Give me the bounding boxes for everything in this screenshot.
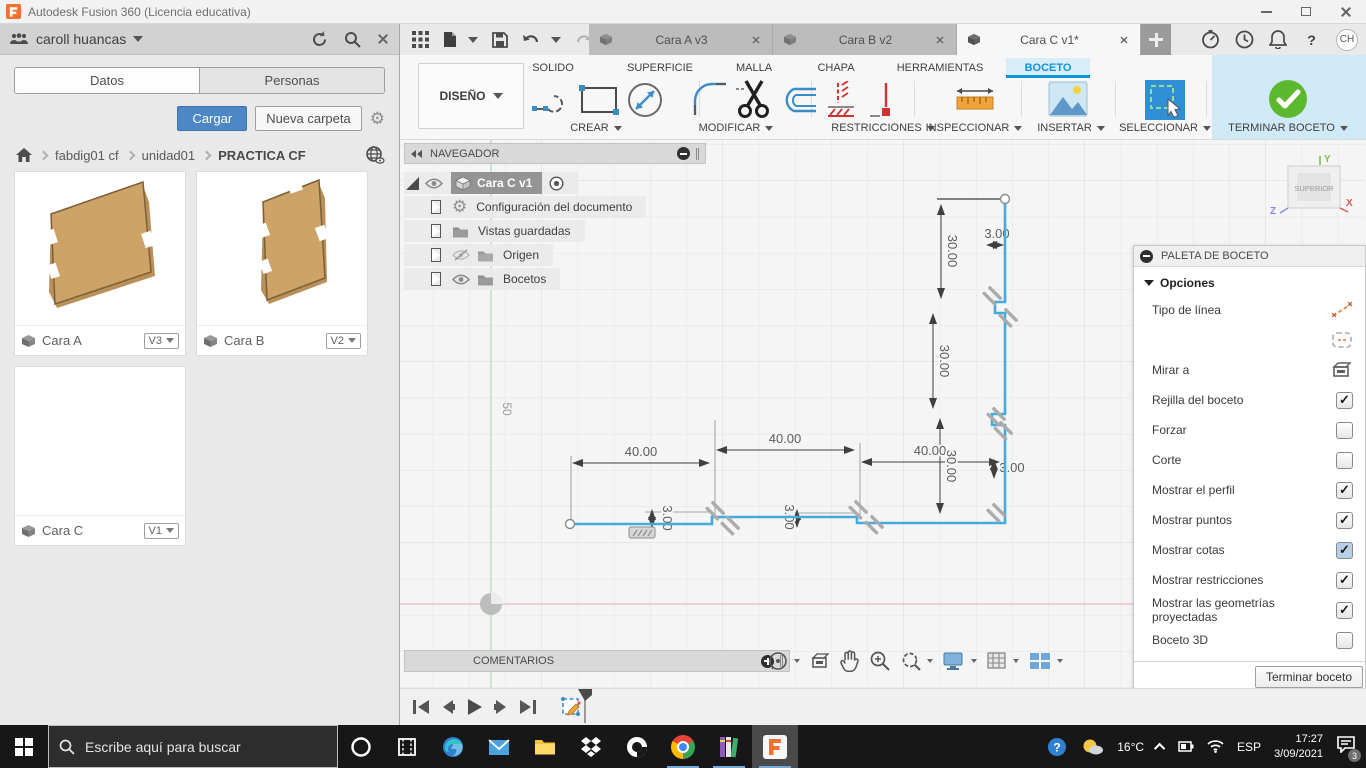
expand-arrow-icon[interactable] (432, 201, 440, 213)
sketch-palette-panel: PALETA DE BOCETO Opciones Tipo de línea … (1133, 245, 1366, 694)
close-tab-icon[interactable] (936, 35, 944, 43)
thumbnail-cara-c (15, 367, 185, 515)
component-cube-icon (21, 334, 36, 348)
measure-ruler-icon[interactable] (953, 85, 997, 115)
document-cube-icon (967, 33, 981, 46)
dropbox-icon (579, 736, 603, 758)
version-dropdown[interactable]: V2 (326, 333, 361, 349)
file-explorer-icon (533, 737, 557, 757)
folder-icon (477, 273, 494, 286)
component-cube-icon (455, 176, 471, 191)
visibility-eye-icon[interactable] (452, 274, 470, 285)
thumbnail-cara-b (197, 172, 367, 320)
tab-malla[interactable]: MALLA (720, 58, 788, 78)
panel-minus-icon[interactable] (677, 147, 690, 160)
group-crear[interactable]: CREAR (546, 121, 646, 135)
sketch-endpoint[interactable] (566, 520, 575, 529)
selected-root-node[interactable]: Cara C v1 (451, 172, 542, 194)
expand-corner-icon[interactable] (406, 177, 419, 190)
taskbar-winrar[interactable] (706, 725, 752, 768)
timeline-bar (400, 688, 1366, 725)
settings-gear-icon[interactable] (370, 109, 385, 129)
palette-row-mostrar-perfil: Mostrar el perfil (1134, 475, 1365, 505)
taskbar-portal[interactable] (614, 725, 660, 768)
minimize-button[interactable] (1246, 0, 1286, 23)
grid-snap-icon[interactable] (986, 651, 1008, 671)
viewcube-axis-x: X (1346, 198, 1353, 209)
navigator-panel: NAVEGADOR Cara C v1 Configura (404, 143, 706, 291)
select-icon[interactable] (1144, 79, 1186, 121)
ribbon-toolbar: DISEÑO SOLIDO SUPERFICIE MALLA CHAPA HER… (400, 55, 1366, 140)
avatar[interactable]: CH (1336, 29, 1358, 51)
refresh-icon[interactable] (311, 31, 328, 48)
panel-grip[interactable] (696, 148, 699, 160)
dim-width-3: 40.00 (914, 443, 947, 458)
timeline-step-back-icon[interactable] (440, 699, 456, 715)
breadcrumb-folder[interactable]: unidad01 (142, 148, 196, 163)
undo-icon (522, 33, 540, 47)
wifi-icon[interactable] (1207, 740, 1224, 753)
sketch-endpoint[interactable] (1001, 195, 1010, 204)
group-modificar[interactable]: MODIFICAR (676, 121, 796, 135)
palette-row-boceto-3d: Boceto 3D (1134, 625, 1365, 655)
taskbar-chrome[interactable] (660, 725, 706, 768)
palette-row-rejilla: Rejilla del boceto (1134, 385, 1365, 415)
team-icon (10, 33, 28, 46)
search-icon[interactable] (344, 31, 361, 48)
file-card-cara-a[interactable]: Cara A V3 (15, 172, 185, 355)
create-rectangle-icon[interactable] (578, 83, 620, 117)
taskbar-mail[interactable] (476, 725, 522, 768)
history-clock-icon[interactable] (1235, 30, 1254, 49)
tray-time: 17:27 (1274, 732, 1323, 747)
temperature[interactable]: 16°C (1117, 740, 1144, 754)
help-icon[interactable]: ? (1302, 30, 1321, 49)
tab-chapa[interactable]: CHAPA (800, 58, 872, 78)
palette-row-forzar: Forzar (1134, 415, 1365, 445)
visibility-eye-icon[interactable] (425, 178, 443, 189)
chevron-down-icon[interactable] (133, 36, 143, 42)
search-icon (59, 739, 75, 755)
undo-button[interactable] (522, 33, 561, 47)
globe-share-icon[interactable] (365, 145, 385, 165)
group-terminar-boceto[interactable]: TERMINAR BOCETO (1208, 121, 1366, 135)
projected-geometry-icon[interactable] (1331, 331, 1353, 349)
version-dropdown[interactable]: V1 (144, 523, 179, 539)
checkbox-mostrar-restricciones[interactable] (1336, 572, 1353, 589)
chrome-icon (671, 735, 695, 759)
action-center[interactable]: 3 (1336, 735, 1356, 758)
viewcube-axis-z: Z (1270, 206, 1276, 217)
pan-hand-icon[interactable] (840, 650, 860, 672)
tray-date: 3/09/2021 (1274, 747, 1323, 762)
navigator-title: NAVEGADOR (430, 148, 499, 160)
view-toolbar (767, 650, 1063, 672)
tree-item-origen[interactable]: Origen (404, 244, 553, 266)
palette-row-mostrar-cotas: Mostrar cotas (1134, 535, 1365, 565)
checkbox-forzar[interactable] (1336, 422, 1353, 439)
palette-row-mostrar-restricciones: Mostrar restricciones (1134, 565, 1365, 595)
close-tab-icon[interactable] (1120, 35, 1128, 43)
tree-item-vistas[interactable]: Vistas guardadas (404, 220, 585, 242)
folder-icon (477, 249, 494, 262)
palette-row-mostrar-puntos: Mostrar puntos (1134, 505, 1365, 535)
checkbox-geometrias-proyectadas[interactable] (1336, 602, 1353, 619)
document-tab-cara-c[interactable]: Cara C v1* (957, 24, 1141, 55)
dim-height-2: 30.00 (937, 345, 952, 378)
windows-taskbar: Escribe aquí para buscar ? 16°C ESP 17:2… (0, 725, 1366, 768)
windows-logo-icon (15, 738, 33, 756)
task-view-icon (396, 736, 418, 758)
timeline-sketch-feature-marker[interactable] (561, 689, 595, 725)
data-panel-header: caroll huancas (0, 24, 399, 55)
app-grid-icon[interactable] (412, 31, 429, 48)
timeline-step-forward-icon[interactable] (493, 699, 509, 715)
viewcube-axis-y: Y (1324, 154, 1331, 165)
upload-button[interactable]: Cargar (177, 106, 247, 131)
expand-arrow-icon[interactable] (432, 273, 440, 285)
component-cube-icon (21, 524, 36, 538)
window-title: Autodesk Fusion 360 (Licencia educativa) (28, 5, 251, 19)
new-folder-button[interactable]: Nueva carpeta (255, 106, 362, 131)
dim-width-1: 40.00 (625, 444, 658, 459)
panel-minus-icon[interactable] (1140, 250, 1153, 263)
checkbox-mostrar-puntos[interactable] (1336, 512, 1353, 529)
file-card-cara-b[interactable]: Cara B V2 (197, 172, 367, 355)
document-tab-cara-b[interactable]: Cara B v2 (773, 24, 957, 55)
tab-solido[interactable]: SOLIDO (518, 58, 588, 78)
palette-row-geometrias-proyectadas: Mostrar las geometrías proyectadas (1134, 595, 1365, 625)
finish-sketch-button[interactable]: Terminar boceto (1255, 666, 1363, 688)
checkbox-mostrar-perfil[interactable] (1336, 482, 1353, 499)
fillet-icon[interactable] (692, 81, 730, 119)
battery-icon[interactable] (1178, 740, 1194, 753)
close-panel-icon[interactable] (377, 33, 389, 45)
timeline-play-icon[interactable] (466, 698, 483, 716)
palette-title: PALETA DE BOCETO (1161, 250, 1269, 262)
main-workspace: 50 (400, 24, 1366, 725)
taskbar-edge[interactable] (430, 725, 476, 768)
ground-constraint-icon[interactable] (629, 527, 655, 538)
zoom-icon[interactable] (869, 650, 891, 672)
document-settings-gear-icon (452, 197, 467, 217)
comments-title: COMENTARIOS (473, 655, 554, 667)
file-card-cara-c[interactable]: Cara C V1 (15, 367, 185, 545)
create-line-icon[interactable] (532, 83, 570, 117)
activate-radio-icon[interactable] (549, 176, 564, 191)
fit-view-icon[interactable] (900, 650, 922, 672)
workspace-selector[interactable]: DISEÑO (418, 63, 524, 129)
dim-width-2: 40.00 (769, 431, 802, 446)
timeline-skip-start-icon[interactable] (412, 699, 430, 715)
sketch-dimension-icon[interactable] (626, 81, 664, 119)
breadcrumb-current: PRACTICA CF (218, 148, 306, 163)
version-dropdown[interactable]: V3 (144, 333, 179, 349)
insert-image-icon[interactable] (1048, 81, 1088, 117)
taskbar-file-explorer[interactable] (522, 725, 568, 768)
close-button[interactable] (1326, 0, 1366, 23)
file-name: Cara C (42, 523, 83, 538)
title-bar: Autodesk Fusion 360 (Licencia educativa) (0, 0, 1366, 24)
clock[interactable]: 17:27 3/09/2021 (1274, 732, 1323, 762)
user-name[interactable]: caroll huancas (36, 31, 126, 47)
options-section-header[interactable]: Opciones (1134, 267, 1365, 295)
search-placeholder: Escribe aquí para buscar (85, 739, 241, 755)
orbit-icon[interactable] (767, 650, 789, 672)
dim-height-3: 30.00 (944, 450, 959, 483)
dim-thickness-bottom-1: 3.00 (660, 505, 675, 530)
mail-icon (487, 737, 511, 757)
taskbar-task-view[interactable] (384, 725, 430, 768)
tab-superficie[interactable]: SUPERFICIE (610, 58, 710, 78)
start-button[interactable] (0, 725, 48, 768)
palette-row-mirar-a: Mirar a (1134, 355, 1365, 385)
taskbar-dropbox[interactable] (568, 725, 614, 768)
palette-row-projected (1134, 325, 1365, 355)
language-indicator[interactable]: ESP (1237, 740, 1261, 754)
tab-boceto[interactable]: BOCETO (1006, 58, 1090, 78)
tree-root-cara-c[interactable]: Cara C v1 (404, 172, 578, 194)
taskbar-cortana[interactable] (338, 725, 384, 768)
comments-panel[interactable]: COMENTARIOS (404, 650, 790, 672)
trim-scissors-icon[interactable] (734, 79, 774, 121)
dim-height-1: 30.00 (945, 235, 960, 268)
taskbar-fusion360[interactable] (752, 725, 798, 768)
tab-herramientas[interactable]: HERRAMIENTAS (880, 58, 1000, 78)
breadcrumb: fabdig01 cf unidad01 PRACTICA CF (16, 145, 385, 165)
close-tab-icon[interactable] (752, 35, 760, 43)
notification-badge: 3 (1348, 749, 1361, 762)
file-menu[interactable] (443, 31, 478, 48)
visibility-off-eye-icon[interactable] (452, 249, 470, 261)
job-status-icon[interactable] (1201, 30, 1220, 49)
constraint-vertical-icon[interactable] (866, 81, 900, 119)
document-cube-icon (599, 33, 613, 46)
grid-scale-label: 50 (500, 402, 514, 416)
viewcube-face-label: SUPERIOR (1294, 184, 1334, 193)
collapse-panel-icon[interactable] (411, 150, 422, 158)
cortana-icon (350, 736, 372, 758)
timeline-skip-end-icon[interactable] (519, 699, 537, 715)
portal-icon (625, 735, 649, 759)
document-tab-cara-a[interactable]: Cara A v3 (589, 24, 773, 55)
look-at-icon[interactable] (809, 652, 831, 670)
folder-icon (452, 225, 469, 238)
new-tab-button[interactable] (1141, 24, 1171, 55)
look-at-icon[interactable] (1331, 361, 1353, 379)
viewcube[interactable]: Y SUPERIOR X Z (1268, 152, 1354, 222)
svg-text:?: ? (1054, 740, 1061, 754)
save-icon[interactable] (492, 32, 508, 48)
checkbox-corte[interactable] (1336, 452, 1353, 469)
taskbar-search[interactable]: Escribe aquí para buscar (48, 725, 338, 768)
palette-row-corte: Corte (1134, 445, 1365, 475)
component-cube-icon (203, 334, 218, 348)
expand-arrow-icon[interactable] (432, 249, 440, 261)
edge-icon (441, 735, 465, 759)
checkbox-boceto-3d[interactable] (1336, 632, 1353, 649)
fusion360-icon (762, 734, 788, 760)
tree-item-configuracion[interactable]: Configuración del documento (404, 196, 646, 218)
viewports-icon[interactable] (1028, 651, 1052, 671)
file-name: Cara B (224, 333, 264, 348)
tab-datos[interactable]: Datos (15, 68, 199, 93)
notifications-bell-icon[interactable] (1269, 30, 1287, 49)
weather-icon[interactable] (1080, 738, 1104, 756)
tray-help-icon[interactable]: ? (1047, 737, 1067, 757)
maximize-button[interactable] (1286, 0, 1326, 23)
tab-personas[interactable]: Personas (199, 68, 384, 93)
file-name: Cara A (42, 333, 82, 348)
document-cube-icon (783, 33, 797, 46)
checkbox-mostrar-cotas[interactable] (1336, 542, 1353, 559)
offset-icon[interactable] (776, 83, 818, 117)
breadcrumb-folder[interactable]: fabdig01 cf (55, 148, 119, 163)
palette-row-tipo-de-linea: Tipo de línea (1134, 295, 1365, 325)
linetype-icon[interactable] (1331, 301, 1353, 319)
dim-thickness-right: 3.00 (999, 460, 1024, 475)
winrar-books-icon (718, 735, 740, 759)
checkbox-rejilla[interactable] (1336, 392, 1353, 409)
expand-arrow-icon[interactable] (432, 225, 440, 237)
tray-expand-icon[interactable] (1154, 742, 1165, 753)
home-icon[interactable] (16, 148, 32, 162)
file-icon (443, 31, 457, 48)
display-settings-icon[interactable] (942, 651, 966, 671)
data-panel-tabs: Datos Personas (14, 67, 385, 94)
data-panel: caroll huancas Datos Personas Cargar Nue… (0, 24, 400, 725)
fusion-logo-icon (6, 4, 21, 19)
tree-item-bocetos[interactable]: Bocetos (404, 268, 560, 290)
constraint-collinear-icon[interactable] (824, 81, 860, 119)
thumbnail-cara-a (15, 172, 185, 320)
finish-sketch-check-icon[interactable] (1268, 79, 1308, 119)
